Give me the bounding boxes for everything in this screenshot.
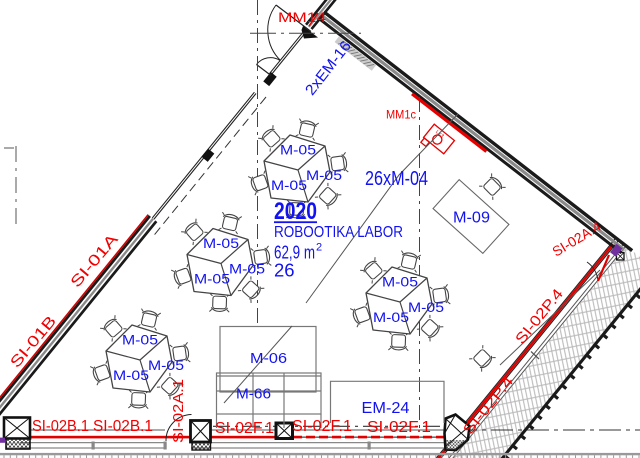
svg-text:2020: 2020 xyxy=(274,198,317,225)
svg-text:MM14: MM14 xyxy=(278,9,326,25)
svg-text:SI-02F.1: SI-02F.1 xyxy=(215,420,274,437)
svg-text:SI-02B.1: SI-02B.1 xyxy=(32,418,89,435)
svg-text:26xM-04: 26xM-04 xyxy=(365,168,428,190)
svg-text:SI-02B.1: SI-02B.1 xyxy=(93,418,153,435)
svg-text:26: 26 xyxy=(274,260,295,281)
svg-text:SI-02A.1: SI-02A.1 xyxy=(170,379,187,443)
svg-text:SI-02F.1: SI-02F.1 xyxy=(292,418,352,435)
svg-text:MM1c: MM1c xyxy=(386,110,416,122)
svg-text:M-06: M-06 xyxy=(250,351,287,367)
svg-text:EM-24: EM-24 xyxy=(362,400,410,417)
svg-text:M-66: M-66 xyxy=(236,387,271,403)
svg-text:M-09: M-09 xyxy=(453,210,490,227)
svg-text:2: 2 xyxy=(316,242,322,254)
svg-text:ROBOOTIKA LABOR: ROBOOTIKA LABOR xyxy=(274,224,403,241)
svg-text:SI-02F.1: SI-02F.1 xyxy=(367,419,431,436)
